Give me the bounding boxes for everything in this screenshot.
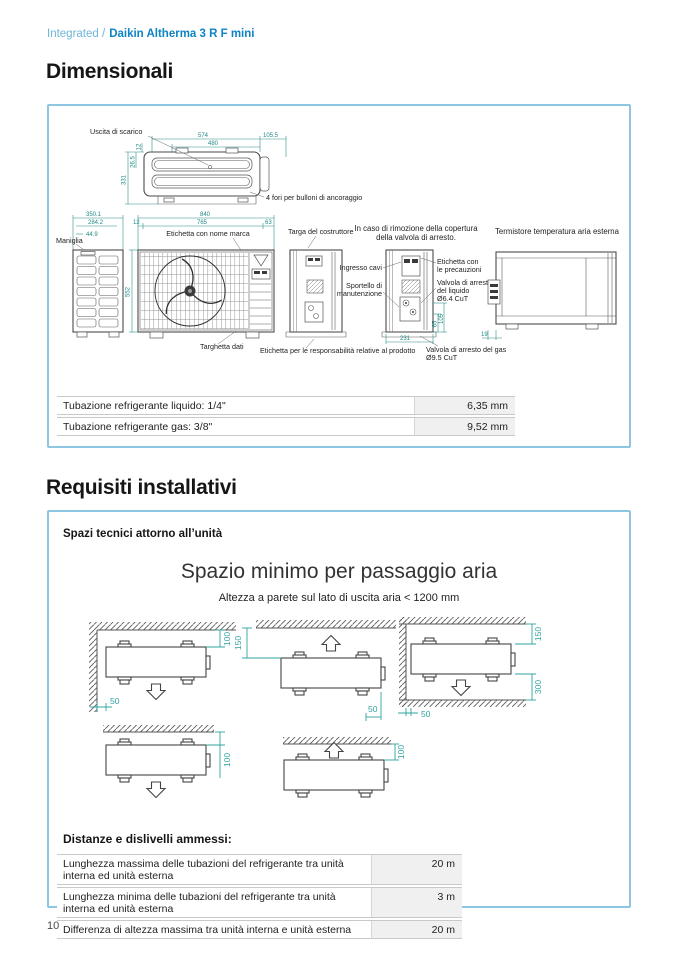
label-termistore: Termistore temperatura aria esterna: [495, 227, 620, 236]
dim-574: 574: [198, 133, 209, 139]
diagram-subtitle: Altezza a parete sul lato di uscita aria…: [49, 592, 629, 604]
dim-480: 480: [208, 141, 219, 147]
dim-19: 19: [481, 332, 488, 338]
airflow-arrow-up: [322, 636, 340, 652]
clearance-150: 150: [533, 627, 543, 641]
spazi-tecnici-label: Spazi tecnici attorno all’unità: [63, 528, 222, 540]
clearance-100: 100: [222, 753, 232, 767]
page-number: 10: [47, 920, 59, 932]
dim-231: 231: [400, 336, 411, 342]
valve-title-line2: della valvola di arresto.: [376, 233, 456, 242]
distances-table-row: Differenza di altezza massima tra unità …: [57, 920, 462, 939]
pipe-row-value: 6,35 mm: [414, 397, 515, 414]
breadcrumb-section: Integrated /: [47, 28, 105, 40]
label-ingresso-cavi: Ingresso cavi: [340, 263, 383, 272]
clearance-100: 100: [396, 745, 406, 759]
dim-12-front: 12: [133, 220, 140, 226]
clearance-diagram-corner: 100 50: [89, 622, 236, 712]
clearance-diagram-recess: 150 300 50: [398, 617, 543, 719]
distances-table-row: Lunghezza massima delle tubazioni del re…: [57, 854, 462, 885]
page-title-dimensionali: Dimensionali: [46, 60, 173, 84]
distance-row-value: 3 m: [371, 888, 462, 917]
dimensional-drawing: 574 105.5 480 331 26.5 12 Uscita di scar…: [50, 112, 628, 370]
catalog-page: { "colors": { "brand_blue": "#0d84c4", "…: [0, 0, 678, 959]
dim-552: 552: [126, 286, 132, 297]
dim-350-1: 350.1: [86, 212, 102, 218]
thermistor-view: Termistore temperatura aria esterna 19: [481, 227, 620, 340]
clearance-50: 50: [368, 704, 378, 714]
front-view: 840 12 765 63 Etichetta con nome marca: [126, 212, 275, 351]
label-precauzioni-2: le precauzioni: [437, 265, 482, 274]
breadcrumb: Integrated /Daikin Altherma 3 R F mini: [47, 28, 254, 40]
distances-table-row: Lunghezza minima delle tubazioni del ref…: [57, 887, 462, 918]
dimensional-drawings-panel: 574 105.5 480 331 26.5 12 Uscita di scar…: [47, 104, 631, 448]
label-liquido-3: Ø6.4 CuT: [437, 294, 469, 303]
dim-12-top: 12: [137, 143, 143, 150]
dim-105: 105: [439, 313, 445, 324]
label-gas-2: Ø9.5 CuT: [426, 353, 458, 362]
dim-765: 765: [197, 220, 208, 226]
distance-row-value: 20 m: [371, 855, 462, 884]
dim-26-5: 26.5: [131, 156, 137, 168]
side-grille-view: 350.1 284.2 44.9 Maniglia: [56, 212, 123, 337]
pipe-row-value: 9,52 mm: [414, 418, 515, 435]
distance-row-label: Differenza di altezza massima tra unità …: [57, 921, 371, 938]
clearance-diagram-outlet-up: 150 50: [233, 620, 396, 721]
clearance-diagrams: 100 50 150 50: [50, 608, 628, 806]
label-sportello-2: manutenzione: [337, 289, 382, 298]
clearance-300: 300: [533, 680, 543, 694]
label-targa-costruttore: Targa del costruttore: [288, 227, 354, 236]
distance-row-label: Lunghezza minima delle tubazioni del ref…: [57, 888, 371, 917]
label-etichetta-responsabilita: Etichetta per le responsabilità relative…: [260, 346, 415, 355]
diagram-title: Spazio minimo per passaggio aria: [49, 560, 629, 584]
clearance-100: 100: [222, 632, 232, 646]
clearance-150: 150: [233, 636, 243, 650]
pipe-table-row: Tubazione refrigerante liquido: 1/4" 6,3…: [57, 396, 515, 415]
dim-105-5: 105.5: [263, 133, 279, 139]
breadcrumb-product: Daikin Altherma 3 R F mini: [109, 28, 254, 40]
clearance-diagram-wall-above-up: 100: [283, 737, 406, 797]
dim-840: 840: [200, 212, 211, 218]
dim-331: 331: [122, 174, 128, 185]
clearance-50: 50: [421, 709, 431, 719]
dim-65: 65: [433, 320, 439, 327]
pipe-row-label: Tubazione refrigerante liquido: 1/4": [57, 397, 414, 414]
installation-requirements-panel: Spazi tecnici attorno all’unità Spazio m…: [47, 510, 631, 908]
distance-row-label: Lunghezza massima delle tubazioni del re…: [57, 855, 371, 884]
distances-heading: Distanze e dislivelli ammessi:: [63, 832, 232, 846]
label-uscita-di-scarico: Uscita di scarico: [90, 127, 142, 136]
label-maniglia: Maniglia: [56, 236, 83, 245]
dim-284-2: 284.2: [88, 220, 104, 226]
clearance-50: 50: [110, 696, 120, 706]
pipe-size-table: Tubazione refrigerante liquido: 1/4" 6,3…: [57, 396, 515, 438]
label-etichetta-marca: Etichetta con nome marca: [166, 229, 250, 238]
airflow-arrow-up: [325, 743, 343, 759]
clearance-diagram-wall-above-down: 100: [103, 725, 232, 798]
valve-view: In caso di rimozione della copertura del…: [337, 224, 507, 362]
label-fori-ancoraggio: 4 fori per bulloni di ancoraggio: [266, 193, 362, 202]
pipe-table-row: Tubazione refrigerante gas: 3/8" 9,52 mm: [57, 417, 515, 436]
pipe-row-label: Tubazione refrigerante gas: 3/8": [57, 418, 414, 435]
airflow-arrow-down: [147, 782, 165, 798]
dim-44-9: 44.9: [86, 232, 98, 238]
airflow-arrow-down: [147, 684, 165, 700]
valve-title-line1: In caso di rimozione della copertura: [354, 224, 478, 233]
page-title-requisiti: Requisiti installativi: [46, 476, 237, 500]
top-view: 574 105.5 480 331 26.5 12 Uscita di scar…: [90, 127, 362, 204]
distances-table: Lunghezza massima delle tubazioni del re…: [57, 854, 462, 941]
label-targhetta-dati: Targhetta dati: [200, 342, 244, 351]
distance-row-value: 20 m: [371, 921, 462, 938]
dim-63: 63: [265, 220, 272, 226]
airflow-arrow-down: [452, 680, 470, 696]
